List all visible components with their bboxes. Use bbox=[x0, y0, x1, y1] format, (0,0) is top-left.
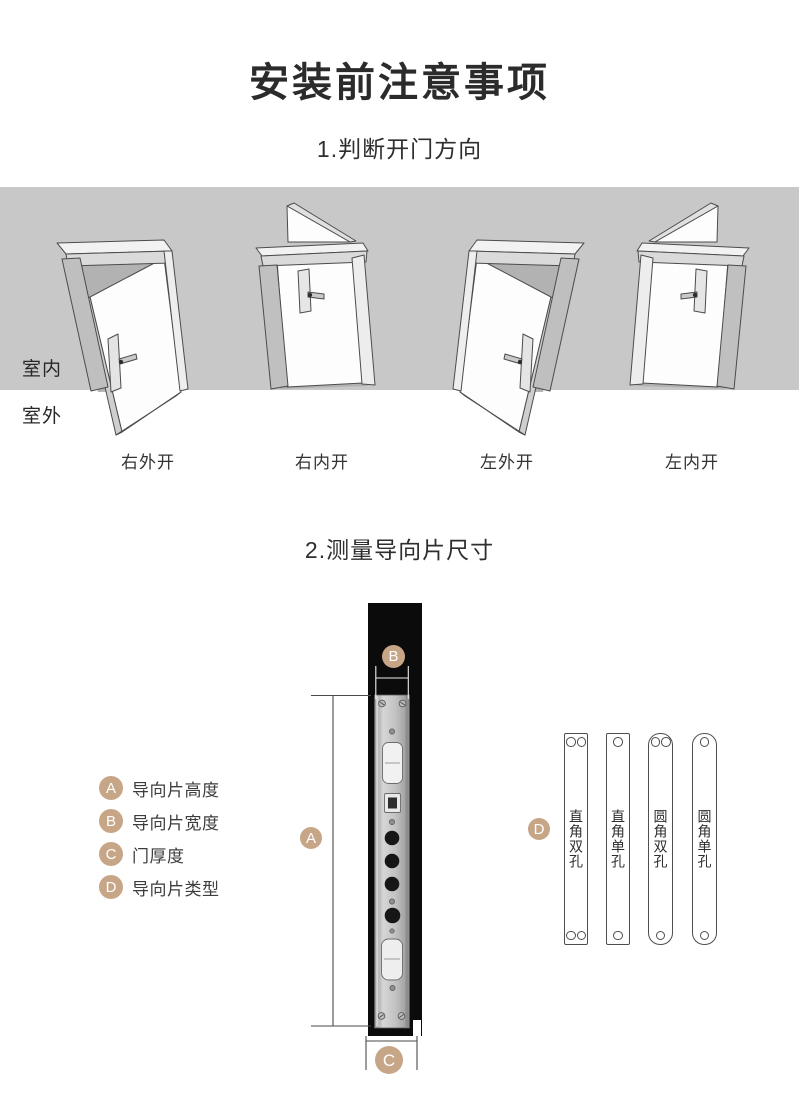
legend-circle-a: A bbox=[99, 776, 123, 800]
door-illustration-left-outward bbox=[441, 235, 591, 445]
guide-plate-round-double: 圆角双孔 bbox=[648, 733, 673, 945]
plate-hole bbox=[656, 931, 666, 941]
guide-plate-label: 直角双孔 bbox=[565, 734, 587, 944]
guide-plate-label: 直角单孔 bbox=[607, 734, 629, 944]
door-bottom-highlight bbox=[413, 1020, 421, 1036]
plate-hole bbox=[577, 931, 587, 941]
marker-a-letter: A bbox=[306, 831, 316, 846]
hub-hole bbox=[388, 798, 397, 809]
door-illustration-left-inward bbox=[630, 200, 755, 392]
door-illustration-right-outward bbox=[50, 235, 200, 445]
marker-d: D bbox=[528, 818, 550, 840]
legend-label-a: 导向片高度 bbox=[132, 776, 220, 801]
marker-b-letter: B bbox=[388, 649, 398, 664]
marker-b: B bbox=[382, 645, 405, 668]
legend-row-d: D 导向片类型 bbox=[99, 875, 220, 899]
lock-knob bbox=[308, 293, 312, 297]
marker-c-letter: C bbox=[383, 1052, 395, 1069]
marker-d-letter: D bbox=[534, 822, 545, 837]
lock-knob bbox=[119, 360, 123, 364]
guide-plate-label: 圆角单孔 bbox=[693, 734, 716, 944]
plate-hole bbox=[613, 931, 623, 941]
legend-row-b: B 导向片宽度 bbox=[99, 809, 220, 833]
legend-label-c: 门厚度 bbox=[132, 842, 185, 867]
door-panel-above-frame bbox=[287, 206, 350, 242]
door-caption-right-inward: 右内开 bbox=[267, 448, 377, 473]
legend-row-c: C 门厚度 bbox=[99, 842, 185, 866]
marker-a: A bbox=[300, 827, 322, 849]
door-caption-right-outward: 右外开 bbox=[93, 448, 203, 473]
section1-heading: 1.判断开门方向 bbox=[0, 130, 799, 164]
legend-circle-c: C bbox=[99, 842, 123, 866]
section2-heading: 2.测量导向片尺寸 bbox=[0, 531, 799, 565]
plate-hole bbox=[566, 931, 576, 941]
guide-plate-round-single: 圆角单孔 bbox=[692, 733, 717, 945]
page: 安装前注意事项 1.判断开门方向 室内 室外 bbox=[0, 0, 799, 1101]
frame-lintel-front bbox=[66, 251, 172, 266]
legend-circle-d: D bbox=[99, 875, 123, 899]
measure-a-lines bbox=[311, 696, 371, 1027]
plate-hole bbox=[700, 931, 710, 941]
door-caption-left-inward: 左内开 bbox=[637, 448, 747, 473]
door-caption-left-outward: 左外开 bbox=[452, 448, 562, 473]
guide-plate-square-single: 直角单孔 bbox=[606, 733, 630, 945]
door-illustration-right-inward bbox=[250, 200, 375, 392]
legend-circle-b: B bbox=[99, 809, 123, 833]
guide-plate-label: 圆角双孔 bbox=[649, 734, 672, 944]
page-title: 安装前注意事项 bbox=[0, 50, 799, 108]
legend-label-b: 导向片宽度 bbox=[132, 809, 220, 834]
door-panel bbox=[277, 256, 363, 387]
marker-c: C bbox=[375, 1046, 403, 1074]
legend-row-a: A 导向片高度 bbox=[99, 776, 220, 800]
lock-plate bbox=[298, 269, 311, 313]
guide-plate-square-double: 直角双孔 bbox=[564, 733, 588, 945]
legend-label-d: 导向片类型 bbox=[132, 875, 220, 900]
